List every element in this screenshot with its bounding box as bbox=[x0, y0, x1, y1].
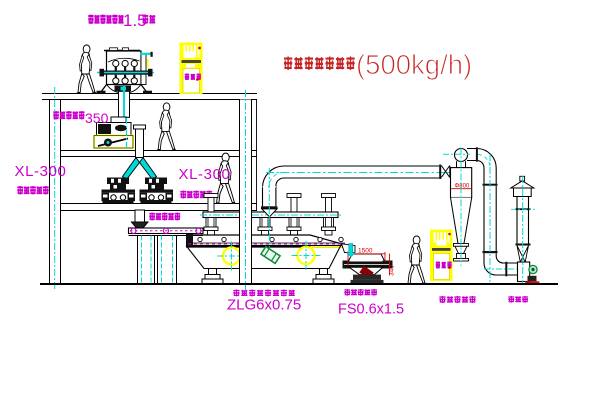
svg-text:FS0.6x1.5: FS0.6x1.5 bbox=[338, 302, 404, 318]
svg-text:1500: 1500 bbox=[358, 248, 373, 255]
svg-text:350: 350 bbox=[85, 110, 109, 126]
svg-text:XL-300: XL-300 bbox=[179, 166, 231, 183]
svg-text:(500kg/h): (500kg/h) bbox=[356, 49, 472, 80]
svg-text:340: 340 bbox=[389, 265, 396, 276]
svg-text:Φ800: Φ800 bbox=[455, 184, 470, 190]
svg-text:ZLG6x0.75: ZLG6x0.75 bbox=[227, 297, 301, 314]
svg-text:XL-300: XL-300 bbox=[15, 163, 67, 180]
